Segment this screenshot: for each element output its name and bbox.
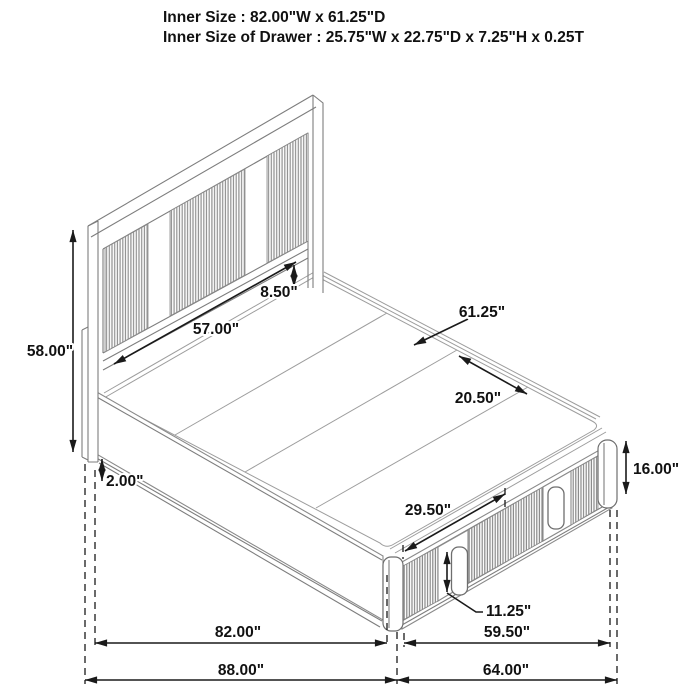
dim-rail-clearance-label: 8.50": [260, 284, 298, 301]
dim-handle-height-leader: [447, 593, 483, 612]
dim-inner-depth: 61.25": [414, 304, 505, 345]
title-block: Inner Size : 82.00"W x 61.25"D Inner Siz…: [163, 9, 584, 46]
dim-headboard-height-label: 58.00": [27, 343, 73, 360]
dim-headboard-width-label: 57.00": [193, 321, 239, 338]
headboard-slat-band-3: [267, 133, 308, 263]
foot-right-corner-post: [598, 440, 617, 508]
dim-overall-length-label: 88.00": [218, 662, 264, 679]
dim-base-height-label: 2.00": [106, 473, 144, 490]
dim-drawer-section-label: 59.50": [484, 624, 530, 641]
side-rail-head-cap: [82, 327, 88, 460]
dim-inner-length: 82.00": [95, 624, 387, 643]
dim-overall-width: 64.00": [397, 662, 617, 680]
dim-overall-length: 88.00": [85, 662, 397, 680]
dim-overall-width-label: 64.00": [483, 662, 529, 679]
title-line-1: Inner Size : 82.00"W x 61.25"D: [163, 9, 385, 26]
dim-handle-height-label: 11.25": [486, 603, 531, 620]
dim-platform-height-label: 16.00": [633, 461, 679, 478]
dim-deck-panel-arrow: [459, 356, 527, 394]
drawer-handle-slot-1: [452, 547, 468, 595]
side-rail-face: [93, 391, 383, 620]
drawer-handle-slot-2: [548, 487, 564, 529]
dim-platform-height: 16.00": [626, 441, 679, 494]
dim-inner-depth-label: 61.25": [459, 304, 505, 321]
dim-drawer-width-label: 29.50": [405, 502, 451, 519]
dim-drawer-section: 59.50": [404, 624, 610, 643]
title-line-2: Inner Size of Drawer : 25.75"W x 22.75"D…: [163, 29, 584, 46]
dim-inner-length-label: 82.00": [215, 624, 261, 641]
dim-deck-panel-label: 20.50": [455, 390, 501, 407]
dim-headboard-height: 58.00": [27, 230, 73, 452]
bed-dimension-diagram: 58.00" 2.00" 57.00" 8.50" 61.25" 20.50": [0, 0, 700, 700]
foot-left-corner-post: [383, 557, 403, 631]
deck-seam-2: [245, 350, 457, 472]
bed-dimension-diagram-page: 58.00" 2.00" 57.00" 8.50" 61.25" 20.50": [0, 0, 700, 700]
